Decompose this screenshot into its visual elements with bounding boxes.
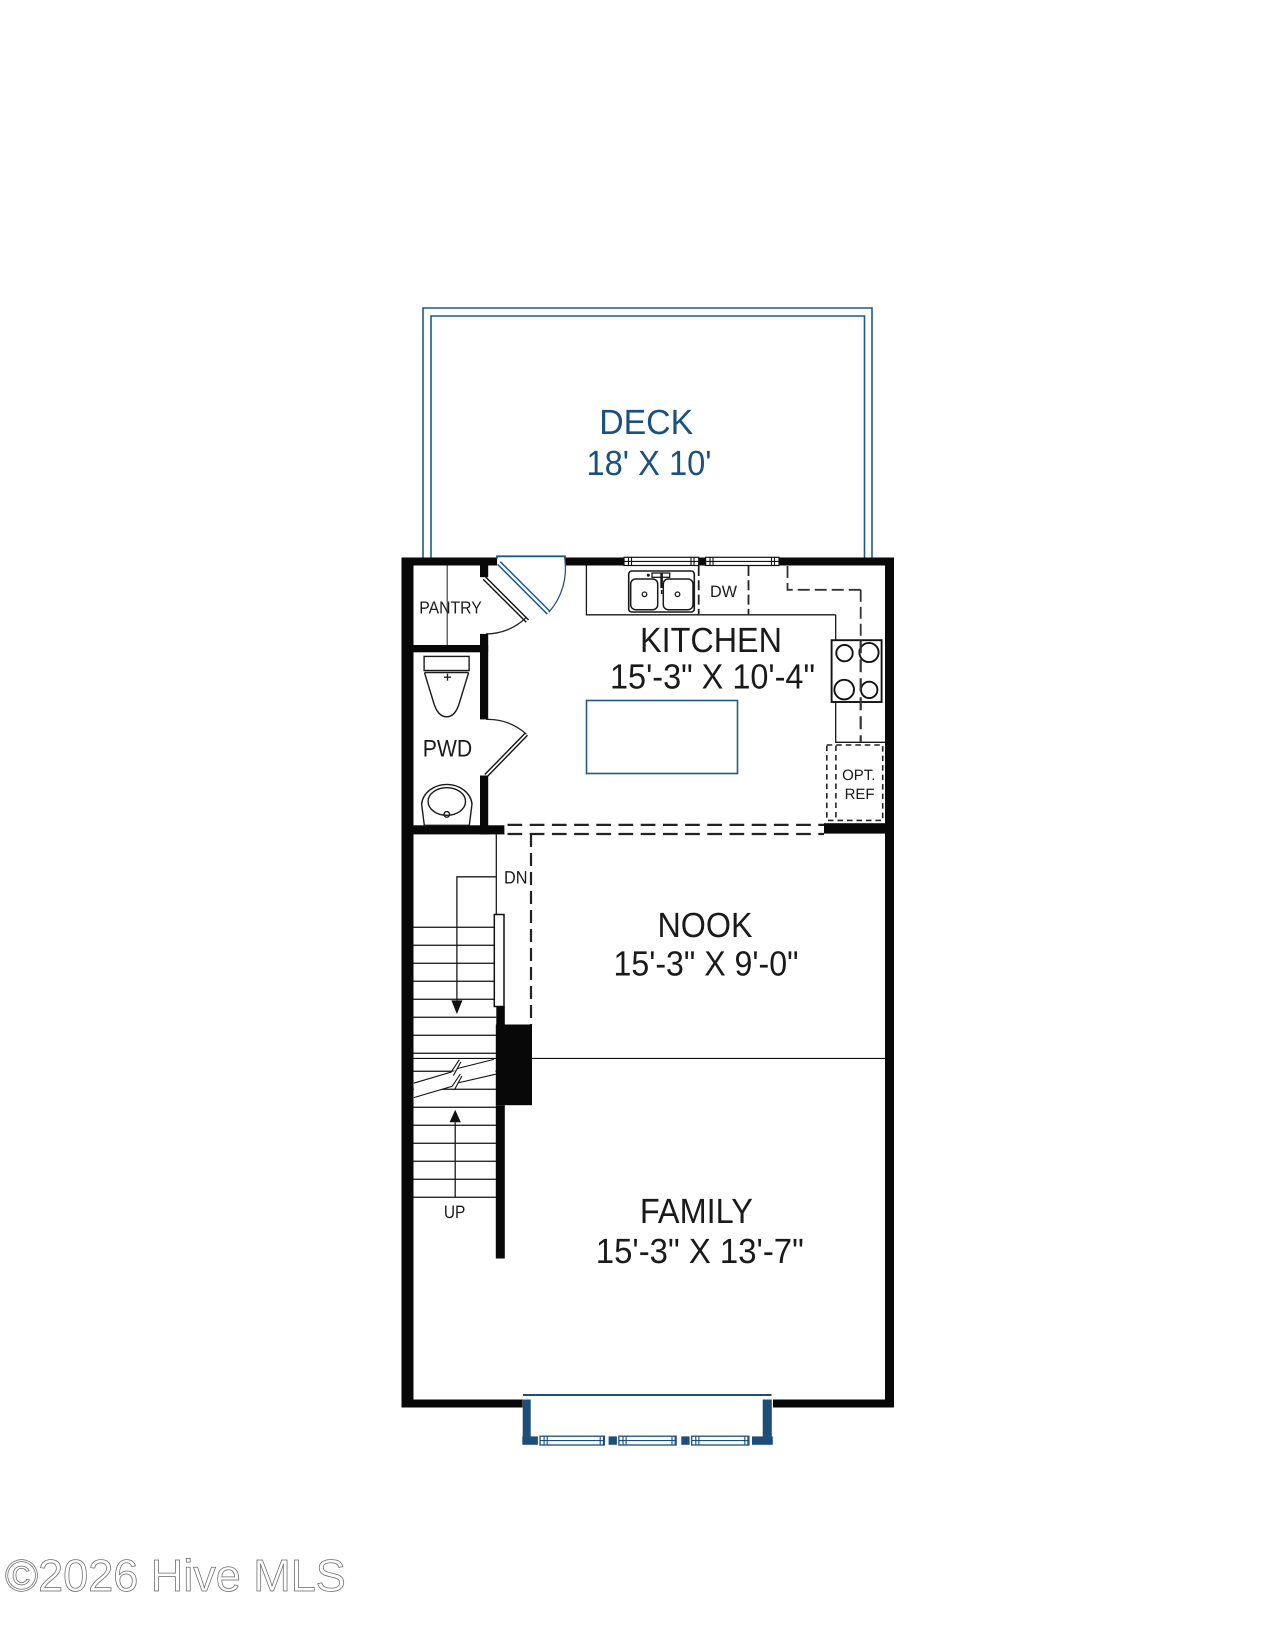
svg-text:15'-3" X 9'-0": 15'-3" X 9'-0"	[614, 945, 799, 984]
svg-text:15'-3" X 10'-4": 15'-3" X 10'-4"	[610, 658, 815, 697]
svg-text:REF: REF	[845, 786, 875, 803]
svg-text:PANTRY: PANTRY	[419, 598, 482, 618]
svg-text:FAMILY: FAMILY	[640, 1192, 753, 1231]
svg-text:DW: DW	[710, 583, 737, 601]
svg-text:15'-3" X 13'-7": 15'-3" X 13'-7"	[596, 1232, 804, 1271]
svg-text:KITCHEN: KITCHEN	[640, 621, 782, 660]
svg-text:©2026 Hive MLS: ©2026 Hive MLS	[5, 1550, 346, 1601]
svg-text:PWD: PWD	[423, 736, 473, 763]
svg-text:OPT.: OPT.	[842, 767, 875, 784]
svg-text:UP: UP	[444, 1202, 466, 1222]
svg-text:18' X 10': 18' X 10'	[587, 444, 712, 483]
svg-text:DECK: DECK	[599, 403, 693, 442]
svg-text:NOOK: NOOK	[658, 906, 753, 945]
svg-text:DN: DN	[504, 868, 528, 888]
